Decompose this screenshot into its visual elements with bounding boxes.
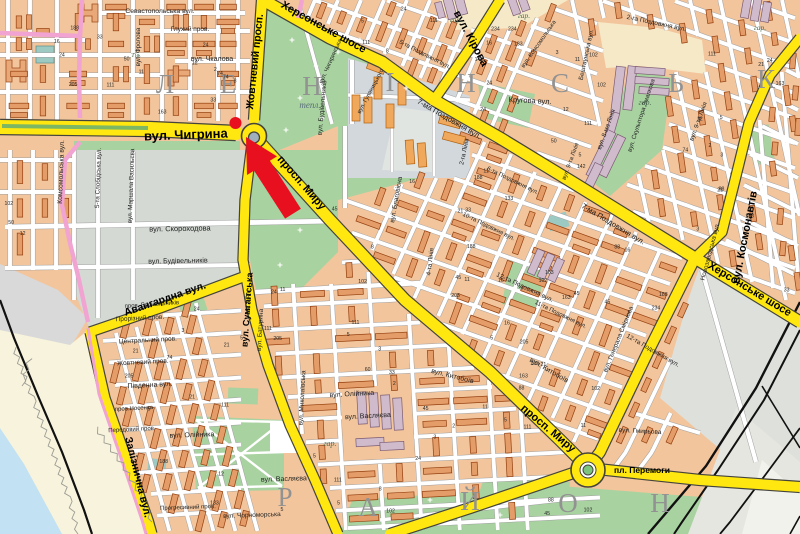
svg-text:21: 21 — [189, 394, 195, 400]
svg-text:163: 163 — [776, 81, 785, 87]
svg-text:11: 11 — [483, 168, 488, 174]
svg-text:188: 188 — [467, 244, 476, 250]
svg-text:гар.: гар. — [323, 439, 336, 448]
svg-text:5: 5 — [490, 336, 493, 342]
svg-text:8: 8 — [379, 486, 382, 492]
svg-text:5: 5 — [337, 500, 340, 506]
svg-text:74: 74 — [217, 71, 223, 77]
svg-text:2: 2 — [452, 424, 455, 430]
svg-text:Глухий пров.: Глухий пров. — [171, 25, 210, 33]
svg-text:12: 12 — [563, 107, 569, 113]
svg-text:234: 234 — [508, 27, 517, 33]
svg-text:І: І — [386, 67, 395, 97]
svg-text:24: 24 — [767, 58, 773, 64]
svg-text:234: 234 — [652, 305, 661, 311]
svg-text:гар.: гар. — [450, 15, 462, 24]
svg-text:205: 205 — [451, 293, 460, 299]
svg-text:133: 133 — [745, 214, 754, 220]
svg-text:11: 11 — [464, 277, 469, 283]
svg-text:5: 5 — [313, 454, 316, 460]
svg-text:102: 102 — [4, 201, 13, 207]
svg-text:Л: Л — [156, 69, 174, 99]
svg-text:24: 24 — [271, 289, 277, 295]
svg-text:163: 163 — [562, 295, 571, 301]
svg-text:33: 33 — [784, 287, 790, 293]
svg-text:24: 24 — [203, 42, 209, 48]
svg-text:33: 33 — [97, 34, 103, 40]
svg-text:21: 21 — [758, 62, 764, 68]
svg-text:102: 102 — [358, 279, 367, 285]
svg-text:3: 3 — [378, 347, 381, 353]
svg-text:24: 24 — [415, 456, 421, 462]
svg-text:21: 21 — [458, 209, 464, 215]
svg-text:3: 3 — [696, 226, 699, 232]
svg-text:5: 5 — [240, 336, 243, 342]
svg-text:8: 8 — [371, 245, 374, 251]
svg-text:Ь: Ь — [668, 68, 684, 98]
svg-text:88: 88 — [519, 386, 525, 392]
svg-text:11: 11 — [482, 404, 487, 410]
svg-text:тепл.: тепл. — [299, 100, 320, 110]
svg-text:вул. Олійника: вул. Олійника — [169, 430, 214, 440]
svg-text:3: 3 — [433, 434, 436, 440]
svg-text:Н: Н — [456, 68, 476, 98]
svg-text:111: 111 — [584, 121, 592, 127]
svg-text:74: 74 — [683, 148, 689, 154]
svg-text:16: 16 — [486, 40, 492, 46]
svg-text:24: 24 — [194, 307, 200, 313]
svg-text:111: 111 — [221, 403, 229, 409]
svg-text:вул. Фролова: вул. Фролова — [135, 27, 142, 66]
svg-text:45: 45 — [605, 300, 611, 306]
svg-text:142: 142 — [577, 164, 586, 170]
svg-text:188: 188 — [159, 459, 168, 465]
svg-text:88: 88 — [548, 498, 554, 504]
svg-text:5: 5 — [504, 418, 507, 424]
svg-text:3: 3 — [556, 50, 559, 56]
svg-text:11: 11 — [280, 287, 285, 293]
svg-text:1-ша Лінія: 1-ша Лінія — [243, 290, 253, 320]
svg-text:234: 234 — [491, 26, 500, 32]
svg-text:24: 24 — [59, 52, 65, 58]
svg-text:188: 188 — [474, 175, 483, 181]
svg-text:12: 12 — [192, 61, 198, 67]
svg-text:24: 24 — [487, 81, 493, 87]
svg-text:111: 111 — [362, 40, 370, 46]
svg-text:205: 205 — [520, 340, 529, 346]
svg-text:А: А — [358, 492, 378, 522]
svg-text:102: 102 — [584, 508, 593, 514]
svg-text:33: 33 — [465, 207, 471, 213]
svg-text:21: 21 — [224, 343, 230, 349]
svg-text:24: 24 — [480, 107, 486, 113]
svg-text:О: О — [558, 488, 578, 518]
svg-text:вул. Скороходова: вул. Скороходова — [149, 223, 211, 233]
svg-text:гар.: гар. — [518, 11, 530, 20]
svg-text:45: 45 — [332, 207, 338, 213]
svg-text:33: 33 — [389, 370, 395, 376]
svg-text:2: 2 — [393, 381, 396, 387]
svg-text:24: 24 — [401, 7, 407, 13]
svg-text:102: 102 — [597, 82, 606, 88]
svg-text:5: 5 — [281, 507, 284, 513]
svg-text:142: 142 — [475, 57, 484, 63]
svg-text:21: 21 — [133, 349, 139, 355]
svg-text:11: 11 — [139, 70, 144, 76]
svg-text:205: 205 — [273, 336, 282, 342]
svg-text:111: 111 — [708, 51, 716, 57]
svg-text:16: 16 — [54, 39, 60, 45]
svg-text:133: 133 — [514, 41, 523, 47]
svg-text:К: К — [757, 64, 776, 94]
svg-text:88: 88 — [719, 187, 725, 193]
svg-text:102: 102 — [591, 386, 600, 392]
svg-text:45: 45 — [455, 275, 461, 281]
svg-text:16: 16 — [625, 248, 631, 254]
svg-text:163: 163 — [158, 110, 167, 116]
svg-text:вул. Будівельників: вул. Будівельників — [148, 256, 208, 265]
svg-text:2: 2 — [214, 67, 217, 73]
svg-text:111: 111 — [334, 478, 342, 484]
svg-text:3: 3 — [720, 152, 723, 158]
svg-text:5: 5 — [720, 115, 723, 121]
svg-text:74: 74 — [167, 355, 173, 361]
svg-text:102: 102 — [386, 509, 395, 515]
svg-text:16: 16 — [504, 320, 510, 326]
svg-text:Й: Й — [460, 486, 480, 516]
svg-text:11: 11 — [581, 423, 586, 429]
svg-text:16: 16 — [409, 179, 415, 185]
svg-text:Тів.: Тів. — [131, 52, 141, 59]
svg-text:50: 50 — [124, 56, 130, 62]
svg-text:111: 111 — [352, 320, 360, 326]
svg-text:50: 50 — [8, 220, 14, 226]
svg-text:111: 111 — [107, 82, 115, 88]
svg-text:188: 188 — [659, 292, 668, 298]
svg-text:102: 102 — [539, 278, 548, 284]
svg-text:гар.: гар. — [754, 23, 766, 32]
svg-text:8: 8 — [234, 78, 237, 84]
svg-text:2: 2 — [708, 143, 711, 149]
svg-text:12: 12 — [218, 471, 224, 477]
svg-text:5: 5 — [578, 153, 581, 159]
svg-text:133: 133 — [210, 500, 219, 506]
svg-text:11: 11 — [575, 57, 580, 63]
svg-text:5: 5 — [347, 332, 350, 338]
svg-text:Н: Н — [302, 71, 322, 101]
svg-text:16: 16 — [498, 278, 504, 284]
svg-text:5: 5 — [147, 406, 150, 412]
svg-text:45: 45 — [574, 291, 580, 297]
svg-text:3: 3 — [182, 328, 185, 334]
svg-text:111: 111 — [523, 425, 531, 431]
svg-text:12: 12 — [697, 116, 703, 122]
svg-text:Севастопольська вул.: Севастопольська вул. — [125, 8, 194, 15]
svg-text:205: 205 — [125, 374, 134, 380]
svg-text:вул. Чигрина: вул. Чигрина — [144, 126, 229, 144]
svg-text:50: 50 — [551, 139, 557, 145]
svg-text:пл. Перемоги: пл. Перемоги — [614, 465, 670, 475]
svg-text:205: 205 — [69, 82, 78, 88]
svg-text:гар.: гар. — [638, 98, 651, 107]
svg-text:45: 45 — [544, 511, 550, 517]
svg-text:188: 188 — [70, 26, 79, 32]
svg-text:133: 133 — [505, 196, 514, 202]
svg-text:163: 163 — [519, 374, 528, 380]
svg-text:102: 102 — [589, 53, 598, 59]
svg-text:С: С — [551, 68, 569, 98]
svg-text:111: 111 — [264, 326, 272, 332]
svg-text:88: 88 — [614, 244, 620, 250]
svg-text:60: 60 — [365, 367, 371, 373]
svg-text:45: 45 — [423, 406, 429, 412]
svg-text:21: 21 — [541, 362, 547, 368]
svg-text:33: 33 — [210, 98, 216, 104]
svg-text:111: 111 — [430, 18, 438, 24]
svg-text:163: 163 — [545, 270, 554, 276]
svg-text:205: 205 — [530, 361, 539, 367]
svg-text:8: 8 — [386, 48, 389, 54]
svg-text:5: 5 — [361, 18, 364, 24]
svg-text:Н: Н — [650, 488, 670, 518]
svg-text:74: 74 — [223, 75, 229, 81]
svg-text:12: 12 — [20, 231, 26, 237]
